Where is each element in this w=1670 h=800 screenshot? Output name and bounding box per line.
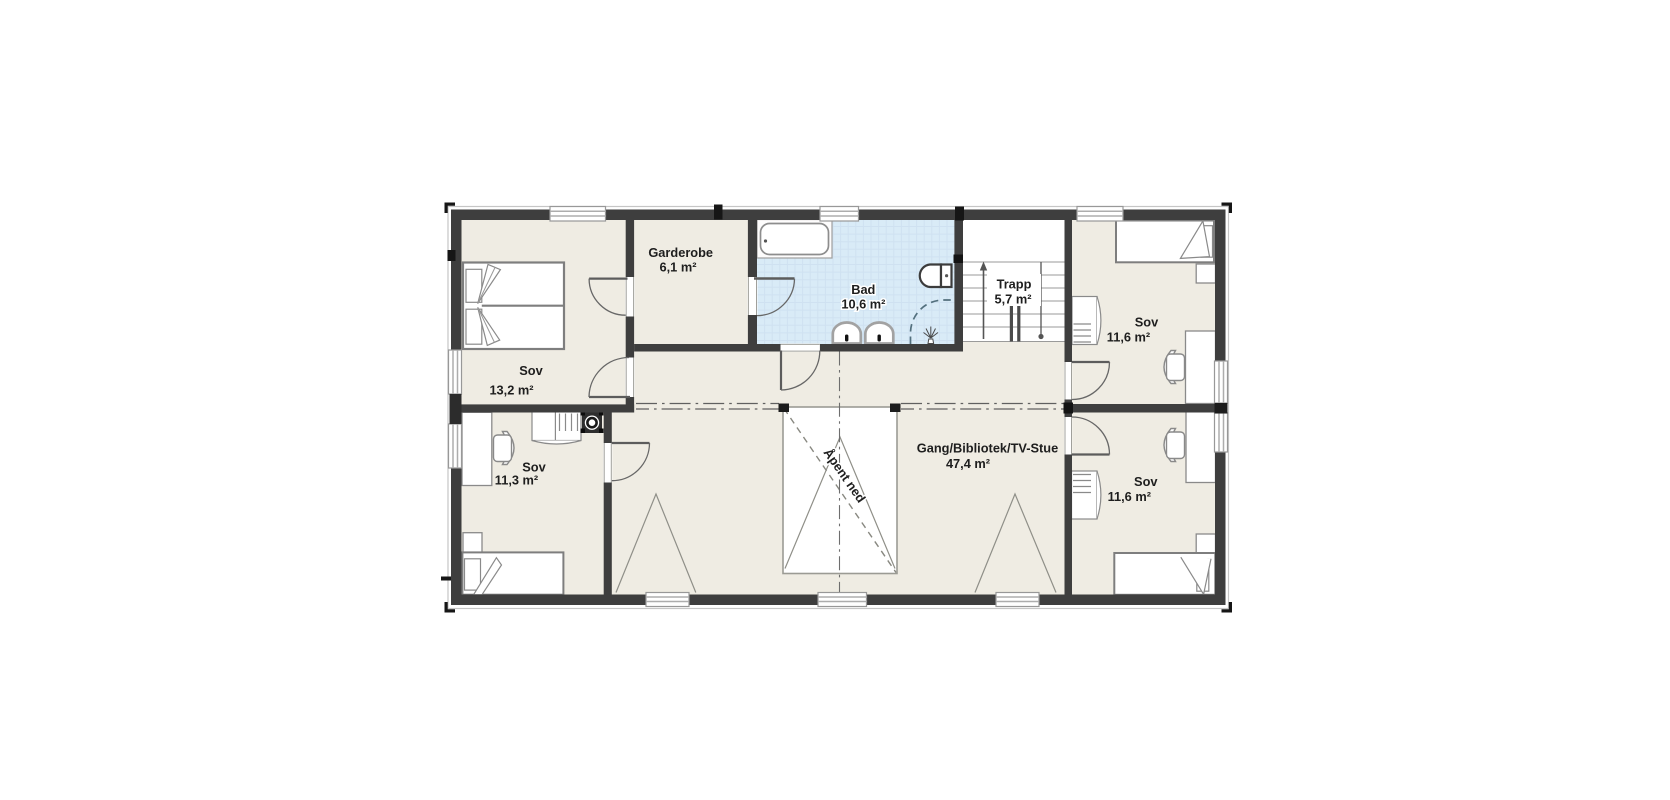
svg-text:Bad: Bad bbox=[851, 282, 875, 297]
svg-text:Sov: Sov bbox=[1134, 474, 1158, 489]
svg-text:47,4 m²: 47,4 m² bbox=[946, 456, 990, 471]
svg-text:11,6 m²: 11,6 m² bbox=[1107, 330, 1150, 345]
svg-text:Sov: Sov bbox=[519, 363, 543, 378]
svg-text:Garderobe: Garderobe bbox=[648, 245, 713, 260]
svg-text:Trapp: Trapp bbox=[997, 277, 1032, 292]
svg-text:11,3 m²: 11,3 m² bbox=[495, 473, 538, 488]
svg-text:Gang/Bibliotek/TV-Stue: Gang/Bibliotek/TV-Stue bbox=[917, 441, 1059, 456]
svg-text:Sov: Sov bbox=[1135, 315, 1159, 330]
svg-text:13,2 m²: 13,2 m² bbox=[489, 383, 533, 398]
svg-text:10,6 m²: 10,6 m² bbox=[841, 297, 885, 312]
svg-text:6,1 m²: 6,1 m² bbox=[660, 260, 697, 275]
svg-text:11,6 m²: 11,6 m² bbox=[1108, 489, 1151, 504]
svg-text:5,7 m²: 5,7 m² bbox=[995, 292, 1032, 307]
